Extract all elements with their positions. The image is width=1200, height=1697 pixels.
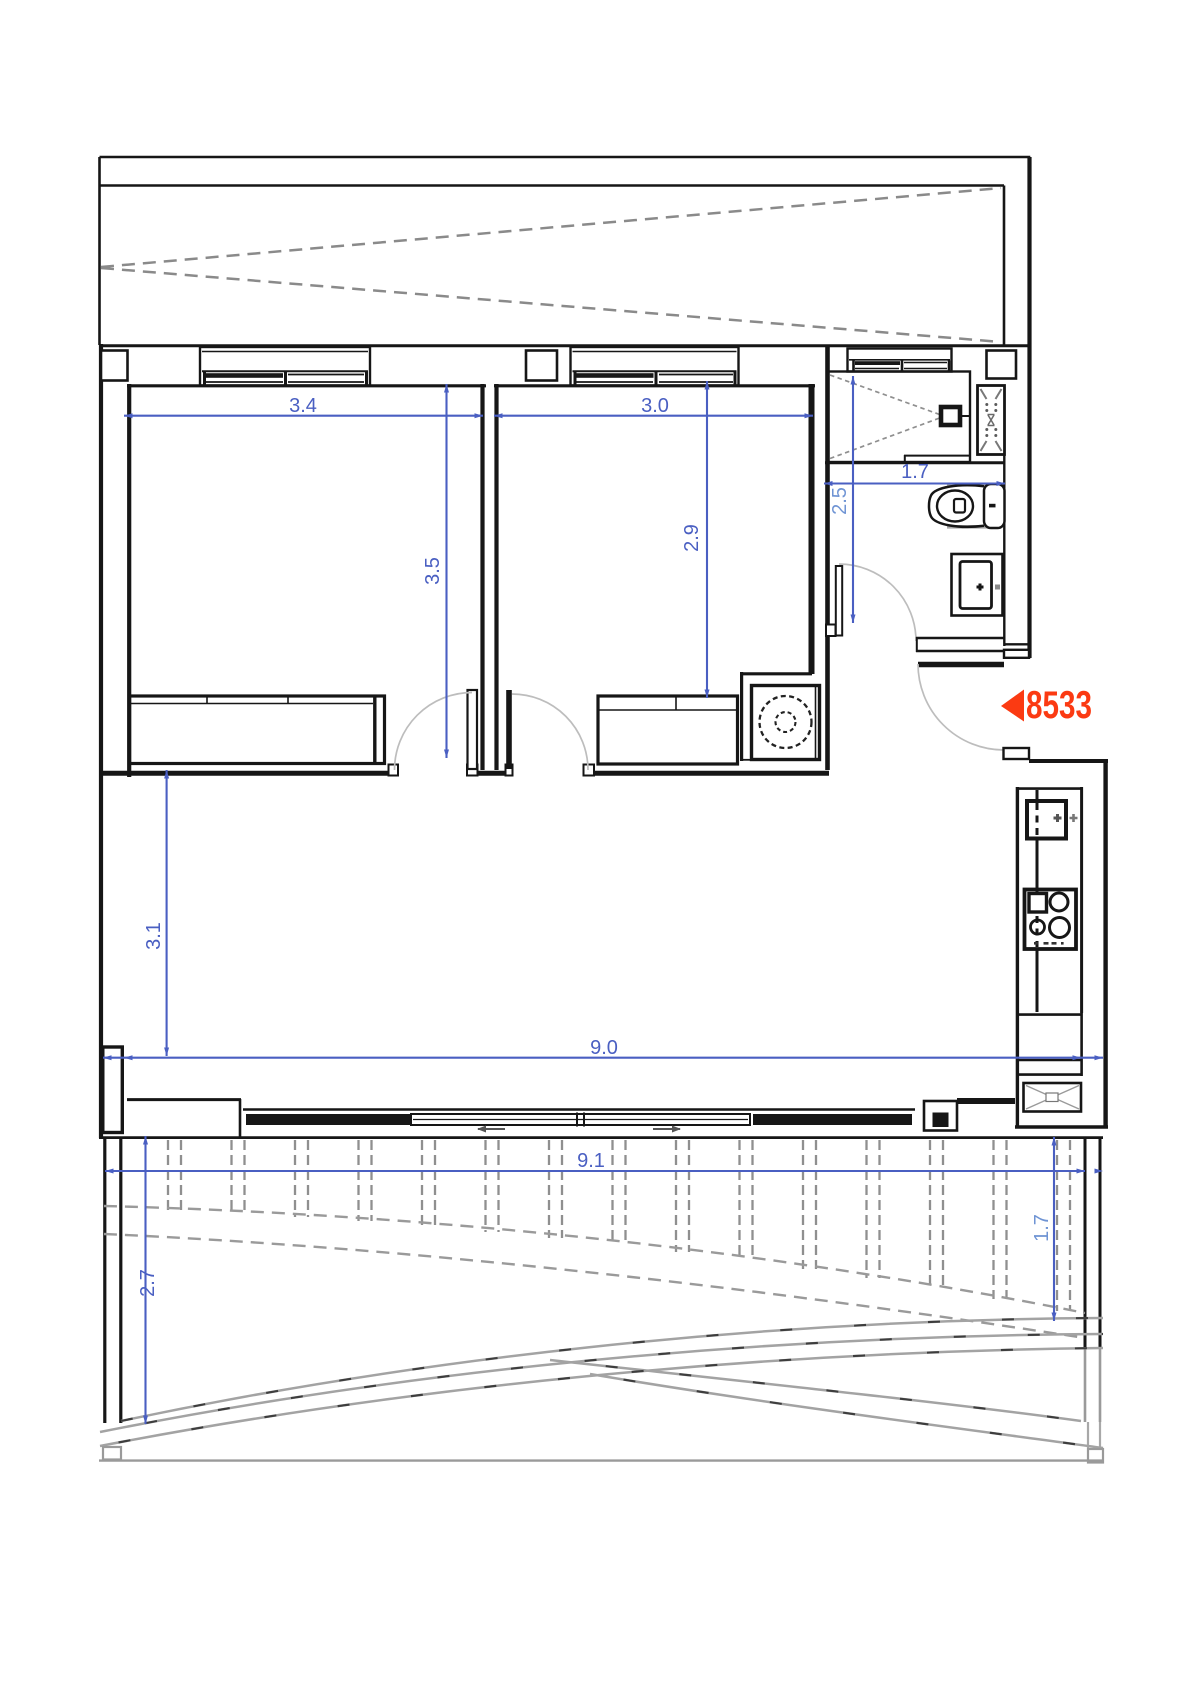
svg-text:3.1: 3.1	[143, 922, 165, 950]
svg-text:9.1: 9.1	[577, 1150, 605, 1172]
svg-text:1.7: 1.7	[901, 461, 929, 483]
svg-text:3.4: 3.4	[289, 395, 317, 417]
svg-text:2.9: 2.9	[681, 524, 703, 552]
svg-text:8533: 8533	[1026, 684, 1092, 727]
svg-text:2.5: 2.5	[829, 487, 851, 515]
svg-text:9.0: 9.0	[590, 1037, 618, 1059]
svg-text:2.7: 2.7	[137, 1269, 159, 1297]
svg-text:1.7: 1.7	[1031, 1214, 1053, 1242]
svg-text:3.0: 3.0	[641, 395, 669, 417]
svg-text:3.5: 3.5	[422, 557, 444, 585]
